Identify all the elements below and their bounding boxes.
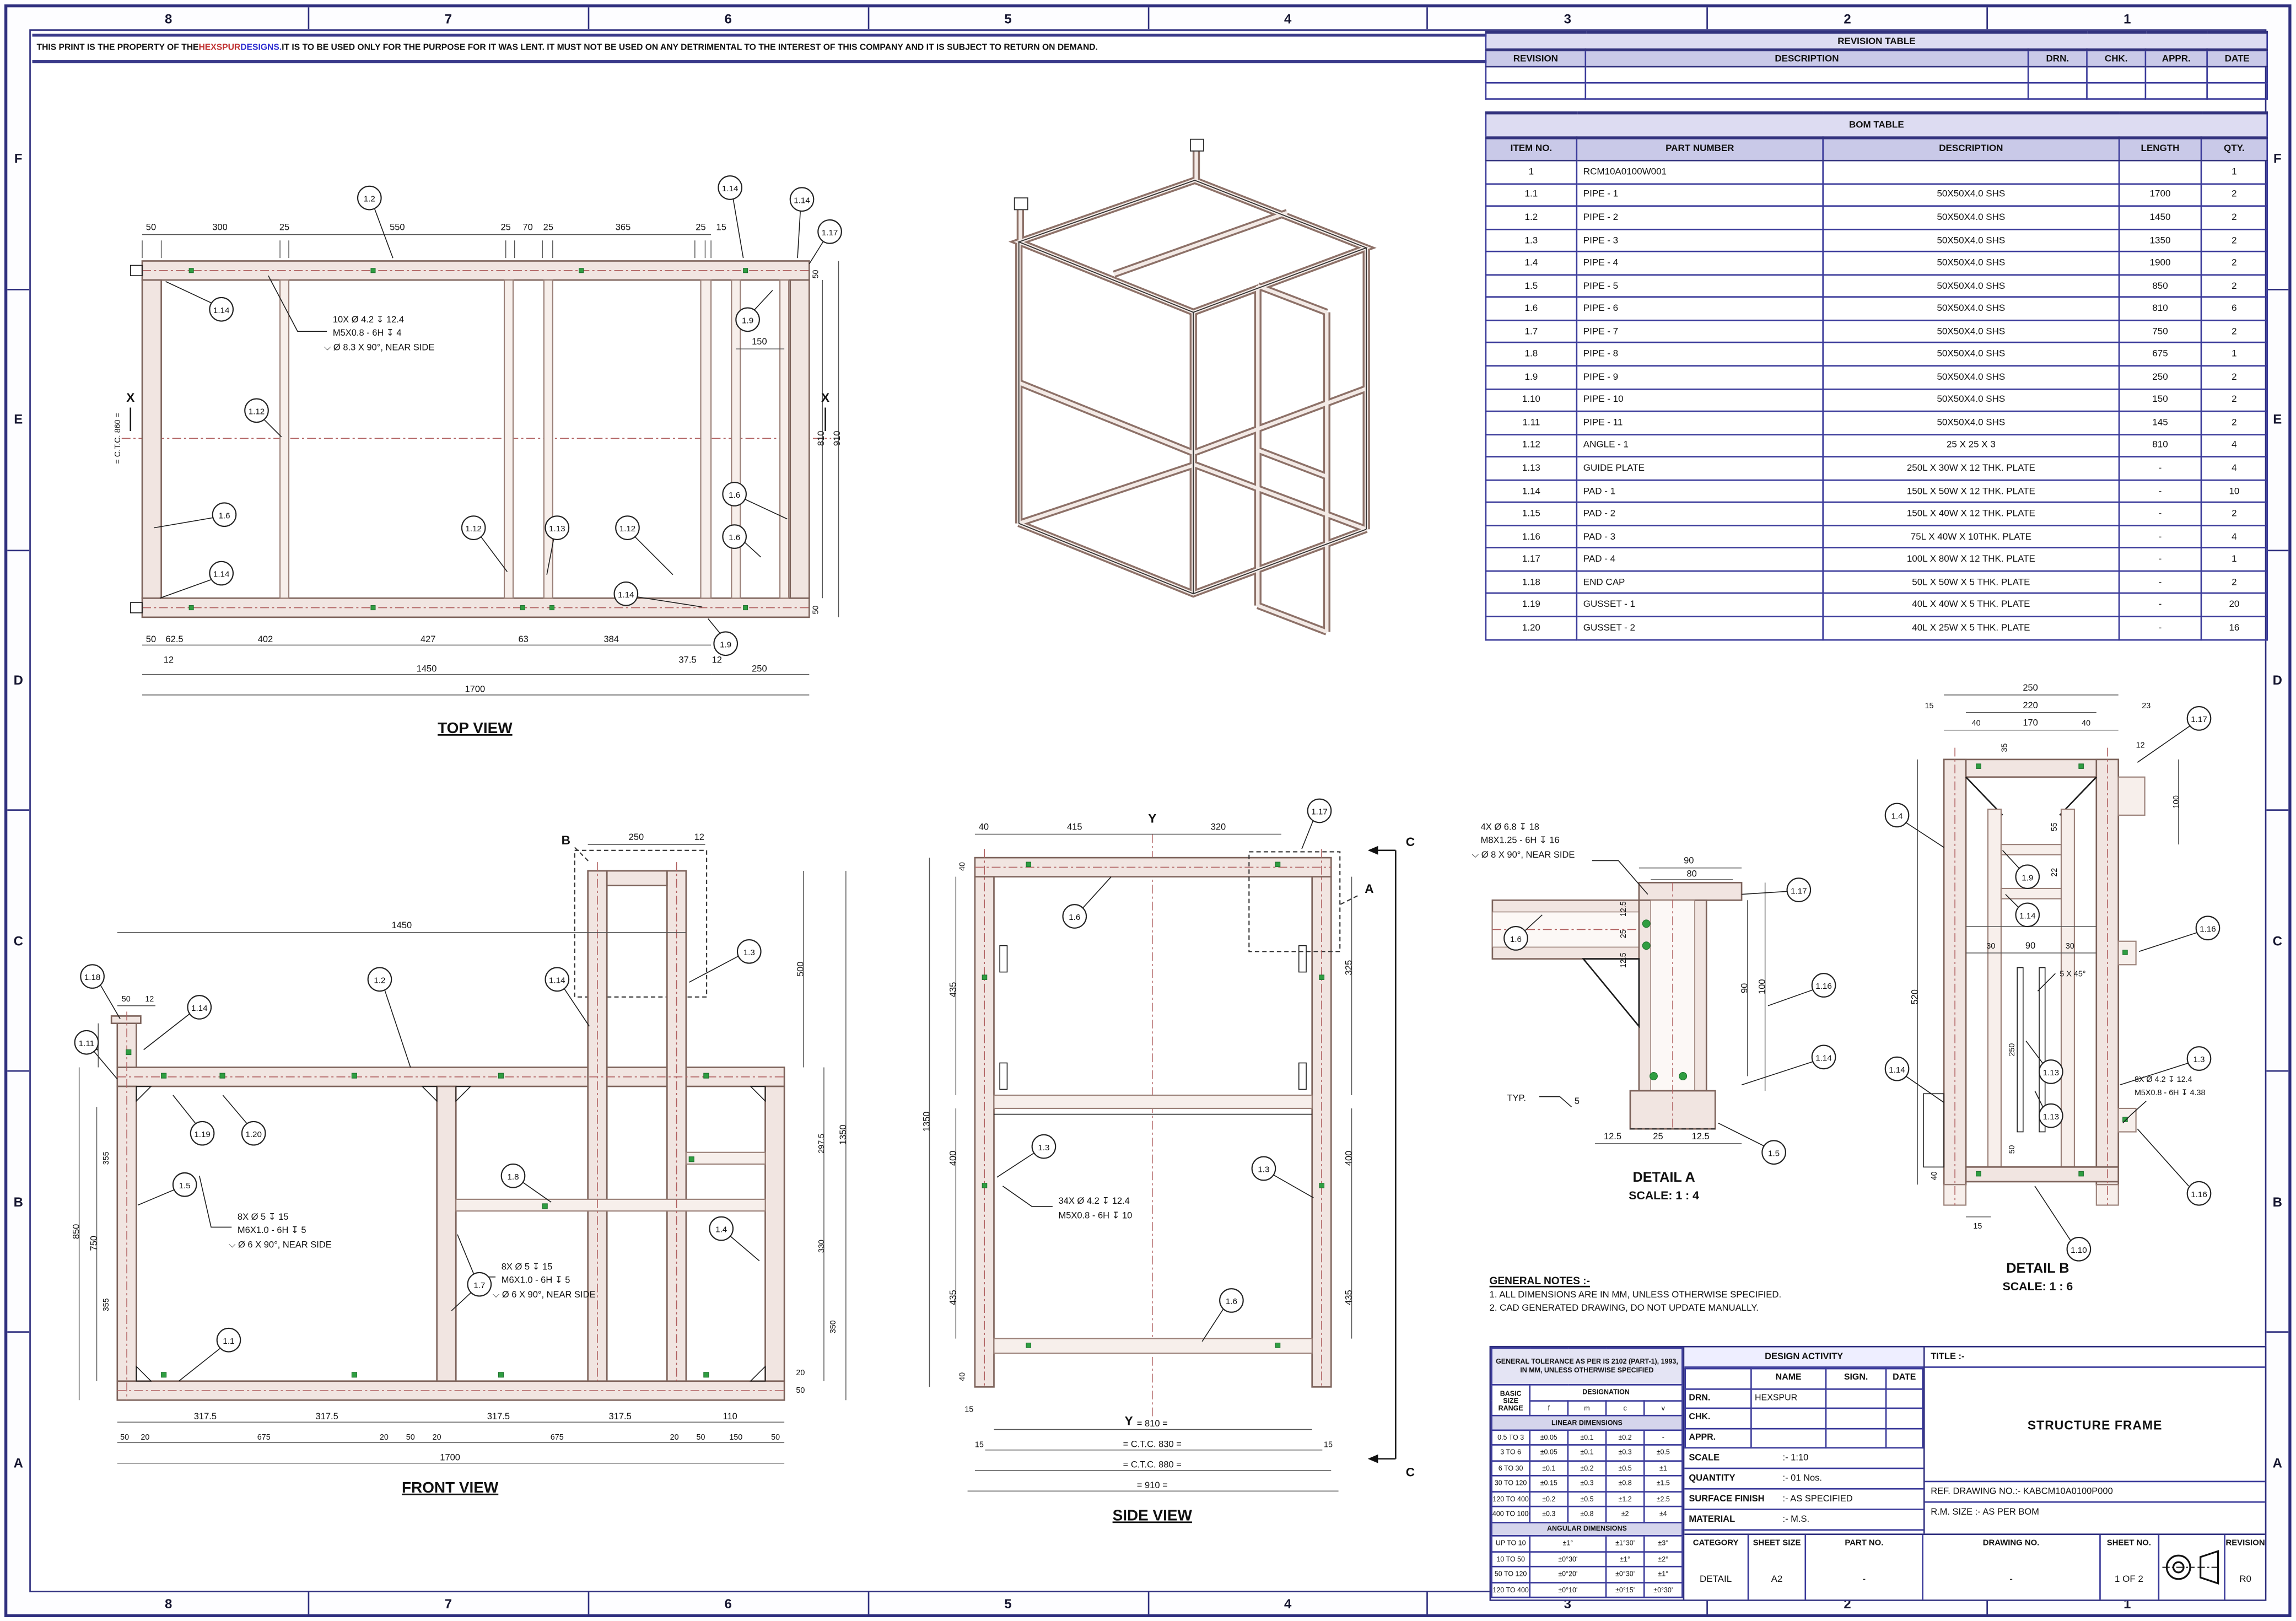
da-chk-label: CHK. — [1685, 1408, 1751, 1428]
svg-text:12.5: 12.5 — [1604, 1132, 1621, 1141]
da-name-header: NAME — [1751, 1369, 1826, 1388]
svg-text:1.6: 1.6 — [1226, 1297, 1237, 1306]
bom-table-title: BOM TABLE — [1486, 113, 2267, 137]
svg-text:1.8: 1.8 — [507, 1172, 519, 1182]
svg-text:63: 63 — [518, 634, 528, 644]
svg-text:220: 220 — [2023, 701, 2038, 710]
svg-text:1.2: 1.2 — [364, 195, 375, 204]
svg-text:550: 550 — [390, 223, 405, 233]
sheet-canvas: 87654321 87654321 FEDCBA FEDCBA THIS PRI… — [0, 0, 2296, 1621]
svg-text:1.17: 1.17 — [1311, 807, 1328, 817]
svg-text:1.16: 1.16 — [2191, 1190, 2207, 1199]
svg-text:12: 12 — [694, 832, 704, 842]
tolerance-title: GENERAL TOLERANCE AS PER IS 2102 (PART-1… — [1492, 1348, 1683, 1385]
svg-text:A: A — [1365, 882, 1373, 896]
ref-drawing-no: REF. DRAWING NO.:- KABCM10A0100P000 — [1925, 1482, 2265, 1502]
bom-table: BOM TABLE ITEM NO. PART NUMBER DESCRIPTI… — [1485, 111, 2268, 640]
zone-label: C — [2266, 810, 2288, 1071]
svg-text:50: 50 — [120, 1433, 129, 1442]
svg-text:12: 12 — [2136, 741, 2145, 750]
svg-text:25: 25 — [279, 223, 289, 233]
da-drn-label: DRN. — [1685, 1388, 1751, 1408]
quantity-label: QUANTITY — [1684, 1474, 1782, 1484]
svg-text:= 810 =: = 810 = — [1137, 1419, 1168, 1429]
svg-text:150: 150 — [729, 1433, 742, 1442]
svg-text:12.5: 12.5 — [1619, 901, 1628, 917]
svg-text:30: 30 — [2066, 942, 2074, 951]
svg-text:1350: 1350 — [838, 1125, 848, 1145]
svg-text:20: 20 — [141, 1433, 149, 1442]
svg-text:1.17: 1.17 — [1791, 886, 1807, 896]
svg-text:1.16: 1.16 — [2200, 924, 2216, 934]
svg-text:750: 750 — [89, 1236, 99, 1251]
svg-text:40: 40 — [1972, 719, 1981, 728]
bom-row: 1.1PIPE - 150X50X4.0 SHS17002 — [1486, 184, 2267, 206]
third-angle-projection-icon — [2161, 1538, 2223, 1596]
zone-label: A — [7, 1332, 29, 1592]
svg-text:400: 400 — [948, 1151, 958, 1166]
zone-label: D — [2266, 550, 2288, 810]
zone-col-right: FEDCBA — [2266, 29, 2288, 1592]
svg-text:675: 675 — [257, 1433, 271, 1442]
svg-text:12.5: 12.5 — [1619, 952, 1628, 968]
tolerance-linear-row: 30 TO 120±0.15±0.3±0.8±1.5 — [1492, 1475, 1683, 1491]
svg-text:Y: Y — [1125, 1414, 1133, 1428]
zone-label: 8 — [29, 1592, 308, 1614]
svg-text:37.5: 37.5 — [678, 655, 696, 665]
svg-text:15: 15 — [1973, 1222, 1982, 1231]
svg-text:1.4: 1.4 — [715, 1225, 727, 1235]
front-view-hole-note-1: 8X Ø 5 ↧ 15 M6X1.0 - 6H ↧ 5 ⌵ Ø 6 X 90°,… — [200, 1176, 332, 1250]
svg-text:1.20: 1.20 — [245, 1130, 261, 1139]
zone-label: 6 — [588, 7, 867, 29]
detail-a-view: 90 80 100 90 12.5 25 12.5 12.5 25 12.5 T… — [1466, 809, 1862, 1213]
svg-text:1.9: 1.9 — [742, 316, 753, 326]
svg-text:⌵ Ø 6 X 90°, NEAR SIDE: ⌵ Ø 6 X 90°, NEAR SIDE — [493, 1290, 596, 1300]
sheet-no-value: 1 OF 2 — [2100, 1560, 2157, 1600]
svg-text:90: 90 — [2025, 941, 2035, 951]
tolerance-designation: DESIGNATION — [1530, 1385, 1683, 1400]
detail-a-scale: SCALE: 1 : 4 — [1629, 1189, 1699, 1202]
side-view-balloons: 1.17 1.6 1.3 1.3 1.6 — [997, 799, 1331, 1342]
svg-text:1450: 1450 — [392, 920, 412, 930]
zone-label: E — [7, 289, 29, 550]
bom-row: 1.5PIPE - 550X50X4.0 SHS8502 — [1486, 274, 2267, 297]
svg-text:50: 50 — [146, 223, 156, 233]
scale-value: :- 1:10 — [1783, 1453, 1923, 1464]
tolerance-linear-row: 6 TO 30±0.1±0.2±0.5±1 — [1492, 1460, 1683, 1475]
svg-text:50: 50 — [146, 634, 156, 644]
category-label: CATEGORY — [1684, 1535, 1747, 1560]
svg-text:300: 300 — [212, 223, 228, 233]
svg-text:1.3: 1.3 — [1258, 1165, 1269, 1175]
svg-text:⌵ Ø 8.3 X 90°, NEAR SIDE: ⌵ Ø 8.3 X 90°, NEAR SIDE — [324, 343, 435, 353]
svg-text:1.10: 1.10 — [2071, 1246, 2087, 1255]
bom-col-header: ITEM NO. — [1486, 137, 1577, 161]
svg-text:4X Ø 6.8 ↧ 18: 4X Ø 6.8 ↧ 18 — [1481, 822, 1539, 832]
svg-text:1.6: 1.6 — [1069, 913, 1080, 922]
svg-text:317.5: 317.5 — [194, 1412, 217, 1421]
side-view-hole-note: 34X Ø 4.2 ↧ 12.4 M5X0.8 - 6H ↧ 10 — [1003, 1186, 1132, 1221]
rev-col-header: APPR. — [2146, 50, 2207, 67]
svg-text:100: 100 — [2172, 795, 2181, 809]
top-view-hole-note: 10X Ø 4.2 ↧ 12.4 M5X0.8 - 6H ↧ 4 ⌵ Ø 8.3… — [268, 276, 435, 353]
bom-row: 1.11PIPE - 1150X50X4.0 SHS1452 — [1486, 411, 2267, 434]
tolerance-angular-row: 10 TO 50±0°30'±1°±2° — [1492, 1551, 1683, 1566]
svg-text:1.12: 1.12 — [465, 524, 481, 534]
svg-text:X: X — [126, 391, 134, 405]
bom-row: 1.18END CAP50L X 50W X 5 THK. PLATE-2 — [1486, 571, 2267, 594]
svg-text:34X Ø 4.2 ↧ 12.4: 34X Ø 4.2 ↧ 12.4 — [1059, 1196, 1130, 1206]
svg-text:⌵ Ø 6 X 90°, NEAR SIDE: ⌵ Ø 6 X 90°, NEAR SIDE — [229, 1240, 332, 1250]
detail-b-scale: SCALE: 1 : 6 — [2003, 1280, 2073, 1293]
svg-text:250: 250 — [629, 832, 644, 842]
tolerance-table: GENERAL TOLERANCE AS PER IS 2102 (PART-1… — [1491, 1348, 1684, 1600]
surface-finish-label: SURFACE FINISH — [1684, 1494, 1782, 1505]
tolerance-linear-row: 400 TO 1000±0.3±0.8±2±4 — [1492, 1506, 1683, 1522]
detail-a-geometry — [1492, 882, 1742, 1129]
tolerance-angular-row: 120 TO 400±0°10'±0°15'±0°30' — [1492, 1582, 1683, 1597]
svg-text:80: 80 — [1686, 869, 1696, 879]
svg-text:1.16: 1.16 — [1815, 982, 1832, 991]
rev-col-header: DESCRIPTION — [1586, 50, 2028, 67]
part-no-value: - — [1807, 1560, 1922, 1600]
svg-text:355: 355 — [102, 1151, 111, 1165]
detail-a-hole-note: 4X Ø 6.8 ↧ 18 M8X1.25 - 6H ↧ 16 ⌵ Ø 8 X … — [1472, 822, 1648, 895]
svg-text:435: 435 — [948, 1290, 958, 1305]
revision-table: REVISION TABLE REVISION DESCRIPTION DRN.… — [1485, 31, 2268, 100]
bom-row: 1.10PIPE - 1050X50X4.0 SHS1502 — [1486, 389, 2267, 411]
svg-text:40: 40 — [1930, 1171, 1939, 1180]
svg-text:1700: 1700 — [440, 1452, 460, 1462]
sheet-size-value: A2 — [1749, 1560, 1805, 1600]
zone-label: 5 — [867, 7, 1147, 29]
svg-text:1.6: 1.6 — [729, 533, 740, 542]
rev-col-header: REVISION — [1486, 50, 1586, 67]
svg-text:250: 250 — [752, 664, 767, 674]
rev-col-header: DRN. — [2028, 50, 2087, 67]
svg-text:1.13: 1.13 — [549, 524, 565, 534]
svg-text:320: 320 — [1211, 822, 1226, 832]
bom-row: 1.7PIPE - 750X50X4.0 SHS7502 — [1486, 320, 2267, 343]
svg-text:1.6: 1.6 — [218, 511, 230, 520]
svg-text:1350: 1350 — [921, 1112, 931, 1132]
revision-row — [1486, 67, 2267, 83]
svg-text:1.17: 1.17 — [2191, 715, 2207, 724]
svg-text:30: 30 — [1986, 942, 1995, 951]
svg-text:435: 435 — [1344, 1290, 1354, 1305]
detail-b-view: 250 220 15 23 40 170 40 35 12 100 55 22 … — [1873, 675, 2255, 1298]
drawing-no-value: - — [1923, 1560, 2099, 1600]
svg-text:1.6: 1.6 — [729, 491, 740, 500]
zone-label: 4 — [1147, 7, 1427, 29]
drawing-title: STRUCTURE FRAME — [1925, 1368, 2265, 1482]
svg-text:1450: 1450 — [417, 664, 437, 674]
svg-text:= C.T.C. 860 =: = C.T.C. 860 = — [114, 413, 122, 464]
svg-text:330: 330 — [817, 1240, 826, 1253]
svg-text:1.14: 1.14 — [191, 1004, 208, 1013]
disclaimer-text: THIS PRINT IS THE PROPERTY OF THE — [37, 44, 199, 53]
svg-text:1.14: 1.14 — [549, 976, 565, 985]
svg-text:297.5: 297.5 — [817, 1134, 826, 1154]
side-view-title: SIDE VIEW — [1113, 1506, 1193, 1523]
svg-text:1.7: 1.7 — [473, 1281, 485, 1290]
svg-text:= 910 =: = 910 = — [1137, 1480, 1168, 1490]
svg-text:1.14: 1.14 — [2019, 911, 2036, 920]
tolerance-linear-row: 120 TO 400±0.2±0.5±1.2±2.5 — [1492, 1491, 1683, 1506]
svg-text:50: 50 — [811, 606, 820, 615]
tolerance-angular-row: UP TO 10±1°±1°30'±3° — [1492, 1536, 1683, 1551]
zone-label: 8 — [29, 7, 308, 29]
svg-text:110: 110 — [723, 1412, 737, 1421]
svg-text:C: C — [1406, 1466, 1415, 1479]
svg-text:5: 5 — [1575, 1096, 1580, 1106]
bom-row: 1.8PIPE - 850X50X4.0 SHS6751 — [1486, 343, 2267, 365]
part-no-label: PART NO. — [1807, 1535, 1922, 1560]
svg-text:1.5: 1.5 — [1768, 1149, 1780, 1158]
bom-row: 1.15PAD - 2150L X 40W X 12 THK. PLATE-2 — [1486, 503, 2267, 525]
bom-col-header: DESCRIPTION — [1823, 137, 2119, 161]
material-label: MATERIAL — [1684, 1515, 1782, 1525]
general-note-item: 1. ALL DIMENSIONS ARE IN MM, UNLESS OTHE… — [1490, 1290, 1944, 1301]
svg-text:C: C — [1406, 835, 1415, 849]
detail-a-title: DETAIL A — [1632, 1170, 1695, 1185]
front-view-balloons: 1.18 1.14 1.11 1.2 1.14 1.3 1.19 1.20 1.… — [75, 940, 761, 1381]
svg-text:12.5: 12.5 — [1692, 1132, 1710, 1141]
svg-text:402: 402 — [258, 634, 273, 644]
detail-b-title: DETAIL B — [2006, 1261, 2069, 1276]
svg-text:20: 20 — [380, 1433, 389, 1442]
svg-text:1.1: 1.1 — [223, 1337, 234, 1346]
svg-text:850: 850 — [72, 1224, 82, 1240]
svg-text:5 X 45°: 5 X 45° — [2060, 970, 2085, 979]
svg-text:1.14: 1.14 — [1889, 1065, 1905, 1075]
svg-text:50: 50 — [771, 1433, 780, 1442]
svg-text:40: 40 — [958, 1372, 967, 1381]
svg-text:1.14: 1.14 — [794, 196, 810, 205]
svg-text:TYP.: TYP. — [1507, 1094, 1526, 1103]
revision-label: REVISION — [2226, 1535, 2265, 1560]
revision-value: R0 — [2226, 1560, 2265, 1600]
revision-row — [1486, 83, 2267, 99]
tol-col: v — [1644, 1400, 1682, 1415]
svg-text:384: 384 — [603, 634, 619, 644]
bom-row: 1.14PAD - 1150L X 50W X 12 THK. PLATE-10 — [1486, 480, 2267, 502]
svg-text:50: 50 — [696, 1433, 705, 1442]
side-view-dimensions: 40 415 320 Y Y 40 435 1350 400 435 40 15… — [921, 811, 1415, 1491]
svg-text:= C.T.C. 830 =: = C.T.C. 830 = — [1123, 1439, 1182, 1449]
bom-row: 1.12ANGLE - 125 X 25 X 38104 — [1486, 434, 2267, 457]
svg-text:25: 25 — [1619, 929, 1628, 938]
material-value: :- M.S. — [1783, 1515, 1923, 1525]
zone-label: 7 — [308, 7, 588, 29]
zone-row-top: 87654321 — [29, 7, 2266, 29]
top-view-title: TOP VIEW — [438, 719, 513, 736]
svg-text:1.17: 1.17 — [822, 228, 838, 238]
rm-size: R.M. SIZE :- AS PER BOM — [1925, 1503, 2265, 1522]
tol-col: c — [1606, 1400, 1644, 1415]
svg-text:15: 15 — [716, 223, 726, 233]
zone-label: 6 — [588, 1592, 867, 1614]
detail-b-geometry — [1923, 748, 2145, 1205]
da-sign-header: SIGN. — [1826, 1369, 1886, 1388]
svg-text:40: 40 — [2082, 719, 2090, 728]
svg-text:15: 15 — [1324, 1440, 1333, 1449]
isometric-view — [880, 139, 1466, 726]
bom-row: 1.13GUIDE PLATE250L X 30W X 12 THK. PLAT… — [1486, 457, 2267, 480]
svg-text:M5X0.8 - 6H ↧ 4.38: M5X0.8 - 6H ↧ 4.38 — [2135, 1089, 2206, 1097]
zone-label: E — [2266, 289, 2288, 550]
svg-text:20: 20 — [796, 1369, 805, 1377]
front-view: 1450 250 12 50 12 150 850 750 355 355 50… — [58, 791, 872, 1502]
svg-text:50: 50 — [406, 1433, 415, 1442]
top-view: 50 300 25 550 25 70 25 365 25 15 50 810 … — [80, 158, 858, 747]
svg-text:25: 25 — [543, 223, 553, 233]
bom-col-header: LENGTH — [2119, 137, 2201, 161]
bom-col-header: QTY. — [2201, 137, 2267, 161]
svg-text:8X Ø 5 ↧ 15: 8X Ø 5 ↧ 15 — [502, 1262, 553, 1272]
zone-col-left: FEDCBA — [7, 29, 29, 1592]
zone-label: 2 — [1707, 7, 1987, 29]
svg-text:50: 50 — [122, 995, 131, 1004]
zone-label: 7 — [308, 1592, 588, 1614]
svg-text:1.12: 1.12 — [249, 407, 265, 416]
rev-col-header: CHK. — [2087, 50, 2146, 67]
side-view: 40 415 320 Y Y 40 435 1350 400 435 40 15… — [880, 770, 1459, 1532]
tolerance-linear-band: LINEAR DIMENSIONS — [1492, 1415, 1683, 1429]
property-disclaimer: THIS PRINT IS THE PROPERTY OF THE HEXSPU… — [33, 34, 1491, 63]
svg-text:55: 55 — [2050, 822, 2059, 831]
svg-text:500: 500 — [796, 962, 806, 977]
svg-text:1700: 1700 — [465, 685, 486, 694]
zone-label: C — [7, 810, 29, 1071]
zone-label: 4 — [1147, 1592, 1427, 1614]
svg-text:317.5: 317.5 — [609, 1412, 632, 1421]
brand-name: HEXSPUR — [198, 44, 240, 53]
tolerance-angular-band: ANGULAR DIMENSIONS — [1492, 1522, 1683, 1536]
svg-text:1.2: 1.2 — [374, 976, 385, 985]
title-label: TITLE :- — [1925, 1348, 2265, 1368]
zone-label: 1 — [1987, 7, 2267, 29]
svg-text:1.4: 1.4 — [1891, 812, 1903, 821]
bom-col-header: PART NUMBER — [1577, 137, 1823, 161]
general-note-item: 2. CAD GENERATED DRAWING, DO NOT UPDATE … — [1490, 1302, 1944, 1313]
svg-text:1.3: 1.3 — [1038, 1143, 1049, 1153]
svg-text:325: 325 — [1344, 960, 1354, 976]
svg-text:1.13: 1.13 — [2043, 1112, 2060, 1122]
svg-text:1.6: 1.6 — [1510, 935, 1522, 944]
svg-text:675: 675 — [551, 1433, 564, 1442]
svg-text:1.9: 1.9 — [720, 640, 731, 649]
scale-label: SCALE — [1684, 1453, 1782, 1464]
drawing-no-label: DRAWING NO. — [1923, 1535, 2099, 1560]
side-view-geometry — [975, 834, 1340, 1418]
tolerance-linear-row: 3 TO 6±0.05±0.1±0.3±0.5 — [1492, 1445, 1683, 1460]
brand-suffix: DESIGNS. — [240, 44, 282, 53]
svg-text:1.14: 1.14 — [1815, 1054, 1832, 1063]
svg-text:810: 810 — [816, 431, 826, 446]
svg-text:520: 520 — [1910, 989, 1920, 1005]
svg-text:1.9: 1.9 — [2022, 873, 2033, 882]
quantity-value: :- 01 Nos. — [1783, 1474, 1923, 1484]
svg-text:50: 50 — [811, 270, 820, 278]
svg-text:1.14: 1.14 — [618, 590, 634, 600]
svg-text:1.13: 1.13 — [2043, 1068, 2060, 1078]
svg-text:1.11: 1.11 — [79, 1039, 94, 1048]
svg-text:10X Ø 4.2 ↧ 12.4: 10X Ø 4.2 ↧ 12.4 — [333, 315, 404, 325]
bom-row: 1.4PIPE - 450X50X4.0 SHS19002 — [1486, 252, 2267, 274]
zone-label: 5 — [867, 1592, 1147, 1614]
svg-text:25: 25 — [1653, 1132, 1663, 1141]
svg-text:12: 12 — [712, 655, 722, 665]
svg-text:M6X1.0 - 6H ↧ 5: M6X1.0 - 6H ↧ 5 — [502, 1275, 570, 1285]
svg-text:40: 40 — [958, 862, 967, 871]
svg-text:250: 250 — [2023, 683, 2038, 693]
general-notes-title: GENERAL NOTES :- — [1490, 1274, 1944, 1288]
svg-text:1.14: 1.14 — [722, 184, 739, 193]
da-appr-label: APPR. — [1685, 1429, 1751, 1448]
zone-label: D — [7, 550, 29, 810]
tol-col: m — [1568, 1400, 1606, 1415]
sheet-size-label: SHEET SIZE — [1749, 1535, 1805, 1560]
svg-text:40: 40 — [979, 822, 989, 832]
title-block: GENERAL TOLERANCE AS PER IS 2102 (PART-1… — [1490, 1346, 2267, 1601]
svg-text:M8X1.25 - 6H ↧ 16: M8X1.25 - 6H ↧ 16 — [1481, 836, 1560, 845]
bom-row: 1.17PAD - 4100L X 80W X 12 THK. PLATE-1 — [1486, 548, 2267, 571]
svg-text:8X Ø 4.2 ↧ 12.4: 8X Ø 4.2 ↧ 12.4 — [2135, 1075, 2192, 1084]
front-view-dimensions: 1450 250 12 50 12 150 850 750 355 355 50… — [72, 832, 848, 1463]
svg-text:70: 70 — [522, 223, 532, 233]
svg-text:317.5: 317.5 — [487, 1412, 510, 1421]
design-activity-title: DESIGN ACTIVITY — [1684, 1348, 1923, 1368]
tolerance-angular-row: 50 TO 120±0°20'±0°30'±1° — [1492, 1566, 1683, 1582]
svg-text:350: 350 — [829, 1320, 838, 1333]
svg-text:20: 20 — [433, 1433, 441, 1442]
bom-row: 1RCM10A0100W0011 — [1486, 161, 2267, 184]
bom-row: 1.9PIPE - 950X50X4.0 SHS2502 — [1486, 366, 2267, 389]
revision-table-title: REVISION TABLE — [1486, 33, 2267, 50]
svg-text:400: 400 — [1344, 1151, 1354, 1166]
bom-row: 1.16PAD - 375L X 40W X 10THK. PLATE-4 — [1486, 525, 2267, 548]
svg-text:M5X0.8 - 6H ↧ 10: M5X0.8 - 6H ↧ 10 — [1059, 1210, 1133, 1220]
tol-col: f — [1530, 1400, 1568, 1415]
zone-label: F — [7, 29, 29, 288]
svg-text:1.3: 1.3 — [2193, 1055, 2205, 1064]
svg-text:B: B — [562, 833, 570, 847]
svg-text:15: 15 — [1925, 702, 1934, 710]
zone-label: 3 — [1427, 7, 1707, 29]
svg-text:1.14: 1.14 — [213, 306, 230, 315]
svg-text:= C.T.C. 880 =: = C.T.C. 880 = — [1123, 1460, 1182, 1470]
svg-text:⌵ Ø 8 X 90°, NEAR SIDE: ⌵ Ø 8 X 90°, NEAR SIDE — [1472, 850, 1575, 860]
svg-text:22: 22 — [2050, 868, 2059, 877]
svg-text:90: 90 — [1740, 983, 1750, 993]
da-date-header: DATE — [1886, 1369, 1923, 1388]
bom-row: 1.2PIPE - 250X50X4.0 SHS14502 — [1486, 206, 2267, 229]
tolerance-linear-row: 0.5 TO 3±0.05±0.1±0.2- — [1492, 1430, 1683, 1445]
svg-text:1.12: 1.12 — [619, 524, 635, 534]
svg-text:170: 170 — [2023, 718, 2038, 728]
zone-label: B — [2266, 1071, 2288, 1332]
tolerance-basic-size: BASIC SIZE RANGE — [1492, 1385, 1530, 1415]
svg-text:100: 100 — [1758, 979, 1767, 994]
svg-text:1.19: 1.19 — [194, 1130, 211, 1139]
category-value: DETAIL — [1684, 1560, 1747, 1600]
svg-text:35: 35 — [2001, 744, 2009, 752]
svg-text:25: 25 — [696, 223, 705, 233]
svg-text:1.5: 1.5 — [179, 1181, 191, 1191]
svg-text:8X Ø 5 ↧ 15: 8X Ø 5 ↧ 15 — [238, 1212, 289, 1222]
